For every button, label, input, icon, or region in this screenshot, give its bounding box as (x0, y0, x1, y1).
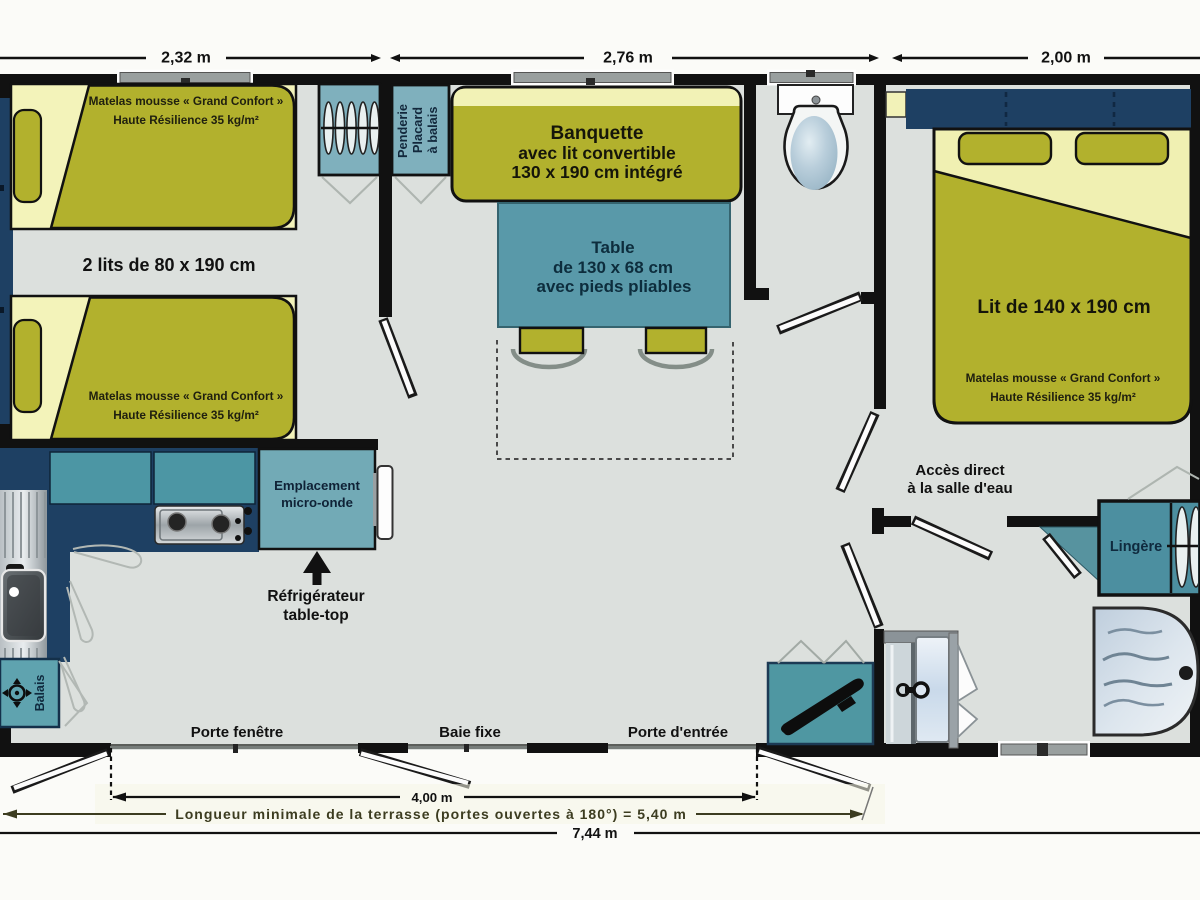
svg-text:Emplacement: Emplacement (274, 478, 360, 493)
svg-text:avec lit convertible: avec lit convertible (518, 143, 676, 163)
svg-text:Accès direct: Accès direct (915, 462, 1004, 479)
svg-text:2,76 m: 2,76 m (603, 50, 653, 67)
svg-text:Penderie: Penderie (395, 104, 410, 158)
svg-text:Lingère: Lingère (1110, 539, 1162, 555)
svg-text:Porte d'entrée: Porte d'entrée (628, 724, 728, 741)
svg-text:à la salle d'eau: à la salle d'eau (907, 480, 1012, 497)
svg-text:à balais: à balais (425, 107, 440, 154)
svg-text:Baie fixe: Baie fixe (439, 724, 501, 741)
svg-text:Matelas mousse « Grand Confort: Matelas mousse « Grand Confort » (89, 94, 284, 108)
svg-text:Placard: Placard (410, 107, 425, 153)
svg-text:table-top: table-top (283, 607, 348, 624)
svg-text:Matelas mousse « Grand Confort: Matelas mousse « Grand Confort » (966, 371, 1161, 385)
svg-text:Porte fenêtre: Porte fenêtre (191, 724, 284, 741)
svg-text:7,44 m: 7,44 m (572, 826, 617, 842)
svg-text:Balais: Balais (33, 675, 47, 712)
svg-text:Longueur minimale de la terras: Longueur minimale de la terrasse (portes… (175, 806, 687, 822)
svg-text:4,00 m: 4,00 m (411, 790, 452, 805)
svg-text:Table: Table (591, 238, 634, 257)
svg-text:130 x 190 cm intégré: 130 x 190 cm intégré (511, 162, 682, 182)
svg-text:Haute Résilience 35 kg/m²: Haute Résilience 35 kg/m² (990, 390, 1136, 404)
svg-text:2 lits de 80 x 190 cm: 2 lits de 80 x 190 cm (82, 255, 255, 275)
svg-text:Haute Résilience 35 kg/m²: Haute Résilience 35 kg/m² (113, 113, 259, 127)
svg-text:Réfrigérateur: Réfrigérateur (267, 588, 364, 605)
svg-text:Banquette: Banquette (551, 123, 644, 144)
svg-text:Haute Résilience 35 kg/m²: Haute Résilience 35 kg/m² (113, 408, 259, 422)
svg-text:Matelas mousse « Grand Confort: Matelas mousse « Grand Confort » (89, 389, 284, 403)
svg-text:avec pieds pliables: avec pieds pliables (537, 277, 692, 296)
svg-text:de 130 x 68 cm: de 130 x 68 cm (553, 258, 673, 277)
svg-text:micro-onde: micro-onde (281, 495, 353, 510)
svg-text:2,32 m: 2,32 m (161, 50, 211, 67)
svg-text:Lit de 140 x 190 cm: Lit de 140 x 190 cm (977, 297, 1150, 318)
svg-text:2,00 m: 2,00 m (1041, 50, 1091, 67)
